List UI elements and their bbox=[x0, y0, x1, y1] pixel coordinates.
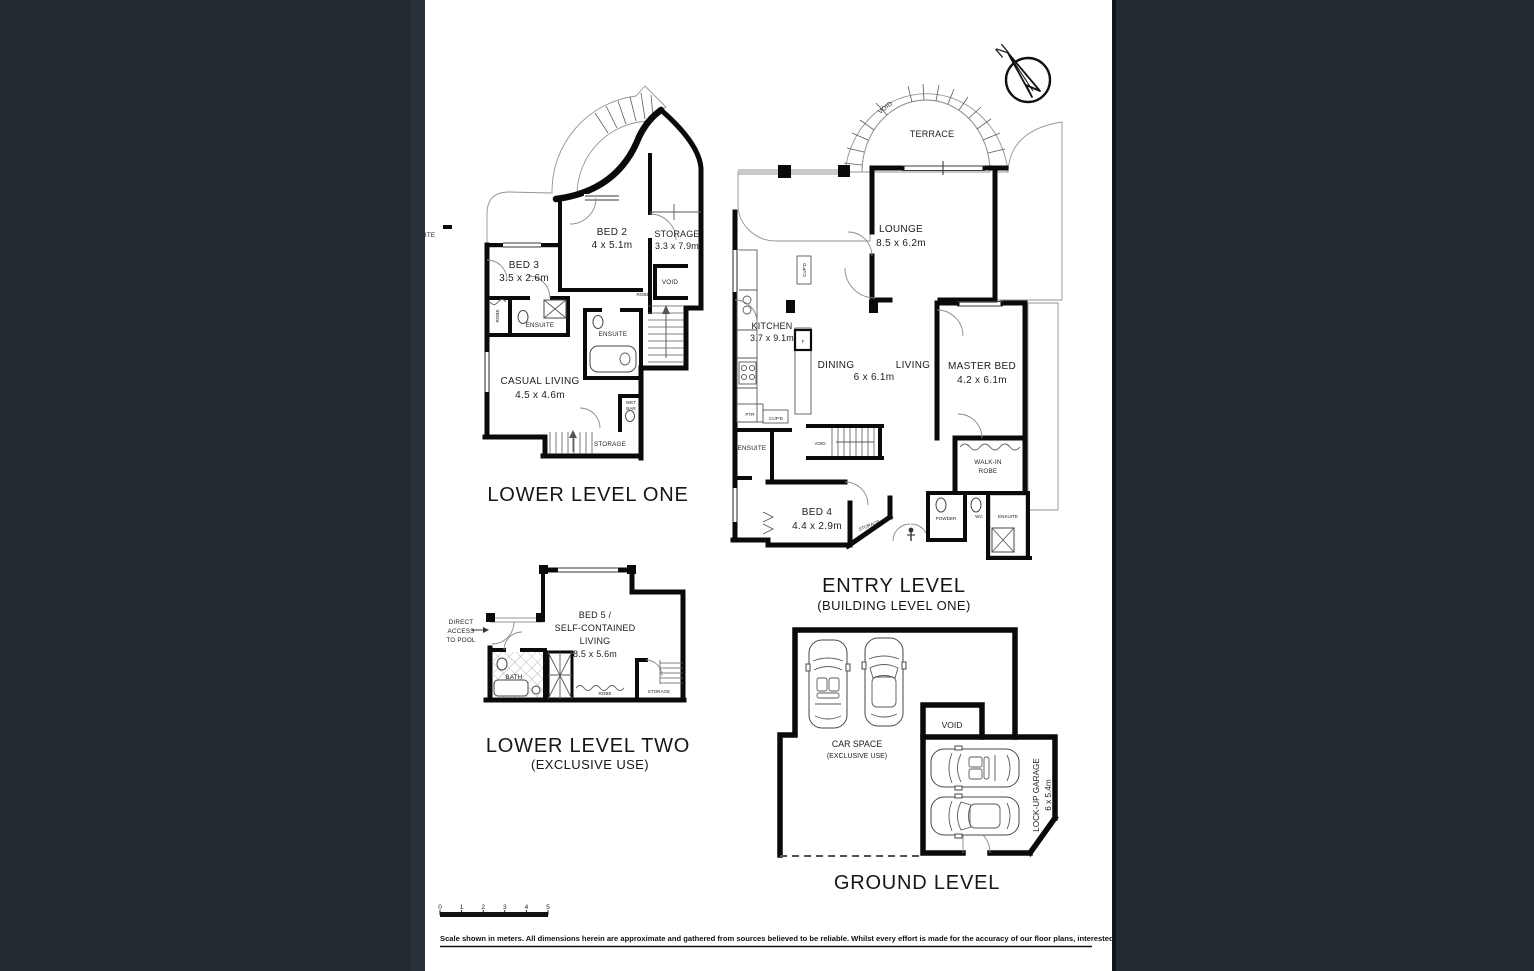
ll1-storage-dims: 3.3 x 7.9m bbox=[655, 241, 699, 251]
ll2-toilet bbox=[497, 658, 507, 670]
ground-garage-dims: 6 x 5.4m bbox=[1044, 779, 1053, 811]
ll1-edge-mark bbox=[443, 225, 452, 229]
entry-walkin-line1: WALK-IN bbox=[974, 459, 1002, 466]
entry-walkin-line2: ROBE bbox=[979, 468, 998, 475]
garage-car-2 bbox=[931, 794, 1019, 838]
ll2-bathtub bbox=[494, 680, 528, 696]
entry-cupboard-a-label: CUP'D bbox=[802, 262, 807, 277]
ll2-storage-label: STORAGE bbox=[648, 689, 670, 694]
ground-void-label: VOID bbox=[942, 720, 963, 730]
ll1-bed3-label: BED 3 bbox=[509, 260, 540, 271]
ll1-bar-label: BAR bbox=[626, 406, 636, 411]
ll1-ensuite-a-label: ENSUITE bbox=[526, 322, 555, 329]
ll2-top-window bbox=[558, 566, 618, 574]
entry-pillar-d bbox=[869, 300, 878, 313]
lower-level-two-subtitle: (EXCLUSIVE USE) bbox=[531, 757, 649, 772]
ll2-pillar-d bbox=[536, 613, 545, 622]
ll1-toilet-b bbox=[593, 316, 603, 329]
ll2-sink bbox=[532, 686, 540, 694]
ground-carspace-line1: CAR SPACE bbox=[832, 739, 882, 749]
ll2-bed5-line1: BED 5 / bbox=[579, 610, 612, 620]
entry-lounge-label: LOUNGE bbox=[879, 224, 923, 235]
scale-tick-4: 4 bbox=[525, 904, 529, 911]
carspace-car-2 bbox=[862, 638, 906, 726]
entry-fridge-label: F bbox=[802, 339, 805, 344]
ll1-bed2-dims: 4 x 5.1m bbox=[592, 240, 633, 251]
ll2-access-line3: TO POOL bbox=[446, 637, 476, 644]
entry-master-label: MASTER BED bbox=[948, 361, 1016, 372]
ll1-casual-dims: 4.5 x 4.6m bbox=[515, 390, 565, 401]
entry-powder-label: POWDER bbox=[936, 516, 957, 521]
ll1-void-label: VOID bbox=[662, 279, 678, 286]
ll1-wetbar-sink bbox=[626, 411, 635, 422]
ll2-pillar-a bbox=[539, 565, 548, 574]
entry-pantry-label: PTR bbox=[745, 412, 755, 417]
ll1-robe-b-label: ROBE bbox=[636, 292, 649, 297]
floorplan-image: N bbox=[0, 0, 1534, 971]
entry-ensuite-master-label: ENSUITE bbox=[998, 514, 1018, 519]
garage-car-1 bbox=[931, 746, 1019, 790]
entry-dining-label: DINING bbox=[818, 360, 855, 371]
ll2-bed5-line2: SELF-CONTAINED bbox=[555, 623, 636, 633]
ll1-storage-small-label: STORAGE bbox=[594, 441, 626, 448]
ll2-access-line2: ACCESS bbox=[447, 628, 474, 635]
entry-pillar-b bbox=[838, 165, 850, 177]
entry-pillar-c bbox=[786, 300, 795, 313]
ground-level-title: GROUND LEVEL bbox=[834, 872, 1000, 894]
entry-wc-toilet bbox=[971, 498, 981, 512]
ll1-wet-label: WET bbox=[626, 400, 636, 405]
right-edge-line bbox=[1112, 0, 1116, 971]
ll1-robe-a-label: ROBE bbox=[495, 309, 500, 322]
ground-garage-label: LOCK-UP GARAGE bbox=[1032, 758, 1041, 832]
entry-pillar-a bbox=[778, 165, 791, 178]
lower-level-two-title: LOWER LEVEL TWO bbox=[486, 735, 690, 757]
carspace-car-1 bbox=[806, 640, 850, 728]
entry-terrace-label: TERRACE bbox=[910, 129, 954, 139]
scale-bar-rule bbox=[440, 912, 548, 917]
entry-cupboard-b-label: CUP'D bbox=[769, 416, 784, 421]
entry-stair-void-label: VOID bbox=[814, 441, 826, 446]
ll1-bathtub bbox=[590, 346, 636, 372]
lower-level-one-title: LOWER LEVEL ONE bbox=[487, 484, 688, 506]
entry-wc-label: WC bbox=[975, 514, 983, 519]
entry-dining-living-dims: 6 x 6.1m bbox=[854, 372, 895, 383]
entry-master-dims: 4.2 x 6.1m bbox=[957, 375, 1007, 386]
entry-ensuite-left-label: ENSUITE bbox=[738, 445, 767, 452]
entry-bed4-label: BED 4 bbox=[802, 507, 833, 518]
entry-kitchen-dims: 3.7 x 9.1m bbox=[750, 333, 794, 343]
ll2-bath-label: BATH bbox=[505, 674, 522, 681]
ground-carspace-line2: (EXCLUSIVE USE) bbox=[827, 753, 887, 760]
ll2-robe-label: ROBE bbox=[598, 691, 611, 696]
scale-tick-0: 0 bbox=[438, 904, 442, 911]
ll2-bed5-dims: 8.5 x 5.6m bbox=[573, 649, 617, 659]
entry-level-title: ENTRY LEVEL bbox=[822, 575, 966, 597]
scale-tick-2: 2 bbox=[481, 904, 485, 911]
entry-bed4-dims: 4.4 x 2.9m bbox=[792, 521, 842, 532]
scale-tick-1: 1 bbox=[460, 904, 464, 911]
ll2-pillar-c bbox=[486, 613, 495, 622]
ll2-bed5-line3: LIVING bbox=[580, 636, 611, 646]
ll1-bed3-dims: 3.5 x 2.6m bbox=[499, 273, 549, 284]
entry-kitchen-label: KITCHEN bbox=[752, 321, 793, 331]
ll2-access-line1: DIRECT bbox=[449, 619, 474, 626]
entry-powder-toilet bbox=[936, 498, 946, 512]
ll1-storage-label: STORAGE bbox=[654, 229, 699, 239]
ll1-casual-label: CASUAL LIVING bbox=[500, 376, 579, 387]
left-edge-band bbox=[411, 0, 425, 971]
entry-lounge-dims: 8.5 x 6.2m bbox=[876, 238, 926, 249]
scale-tick-5: 5 bbox=[546, 904, 550, 911]
entry-living-label: LIVING bbox=[896, 360, 931, 371]
scale-tick-3: 3 bbox=[503, 904, 507, 911]
ll1-bed2-label: BED 2 bbox=[597, 227, 628, 238]
ll2-pillar-b bbox=[627, 565, 636, 574]
entry-level-subtitle: (BUILDING LEVEL ONE) bbox=[817, 598, 970, 613]
ll1-ensuite-b-label: ENSUITE bbox=[599, 331, 628, 338]
